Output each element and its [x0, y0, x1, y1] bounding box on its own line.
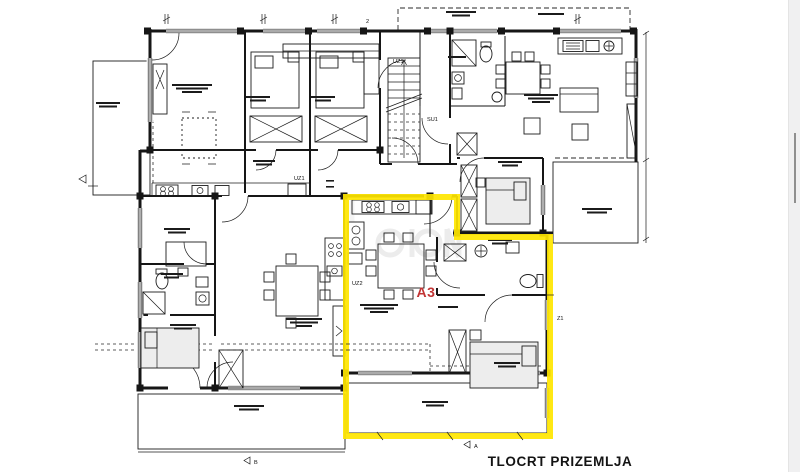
dim-label-2: 2: [366, 19, 369, 25]
exterior-walls: [138, 29, 637, 390]
wall-junctions: [137, 28, 638, 392]
drawing-title: TLOCRT PRIZEMLJA: [488, 454, 633, 469]
floor-plan-drawing: A3 SU1 UZ1 UZ1 UZ2 Z1 2 B A TLOCRT PRIZE…: [0, 0, 788, 472]
floor-plan-page: A3 SU1 UZ1 UZ1 UZ2 Z1 2 B A TLOCRT PRIZE…: [0, 0, 800, 472]
stair-label: SU1: [427, 117, 438, 123]
staircase: [386, 58, 422, 162]
furniture-lower-left: [141, 238, 345, 388]
furniture-upper-right: [476, 38, 637, 224]
wall-label-z1: Z1: [557, 316, 564, 322]
section-marker-a: A: [474, 444, 478, 450]
door-label-uz1-mid: UZ1: [294, 176, 305, 182]
scrollbar-thumb[interactable]: [794, 133, 796, 203]
windows: [137, 28, 641, 418]
furniture-upper-left: [152, 44, 379, 196]
section-marker-b: B: [254, 460, 258, 466]
door-label-uz1-top: UZ1: [393, 59, 404, 65]
apartment-a3-label: A3: [417, 284, 436, 300]
watermark: [352, 196, 459, 257]
door-label-uz2: UZ2: [352, 281, 363, 287]
scrollbar-track[interactable]: [788, 0, 800, 472]
